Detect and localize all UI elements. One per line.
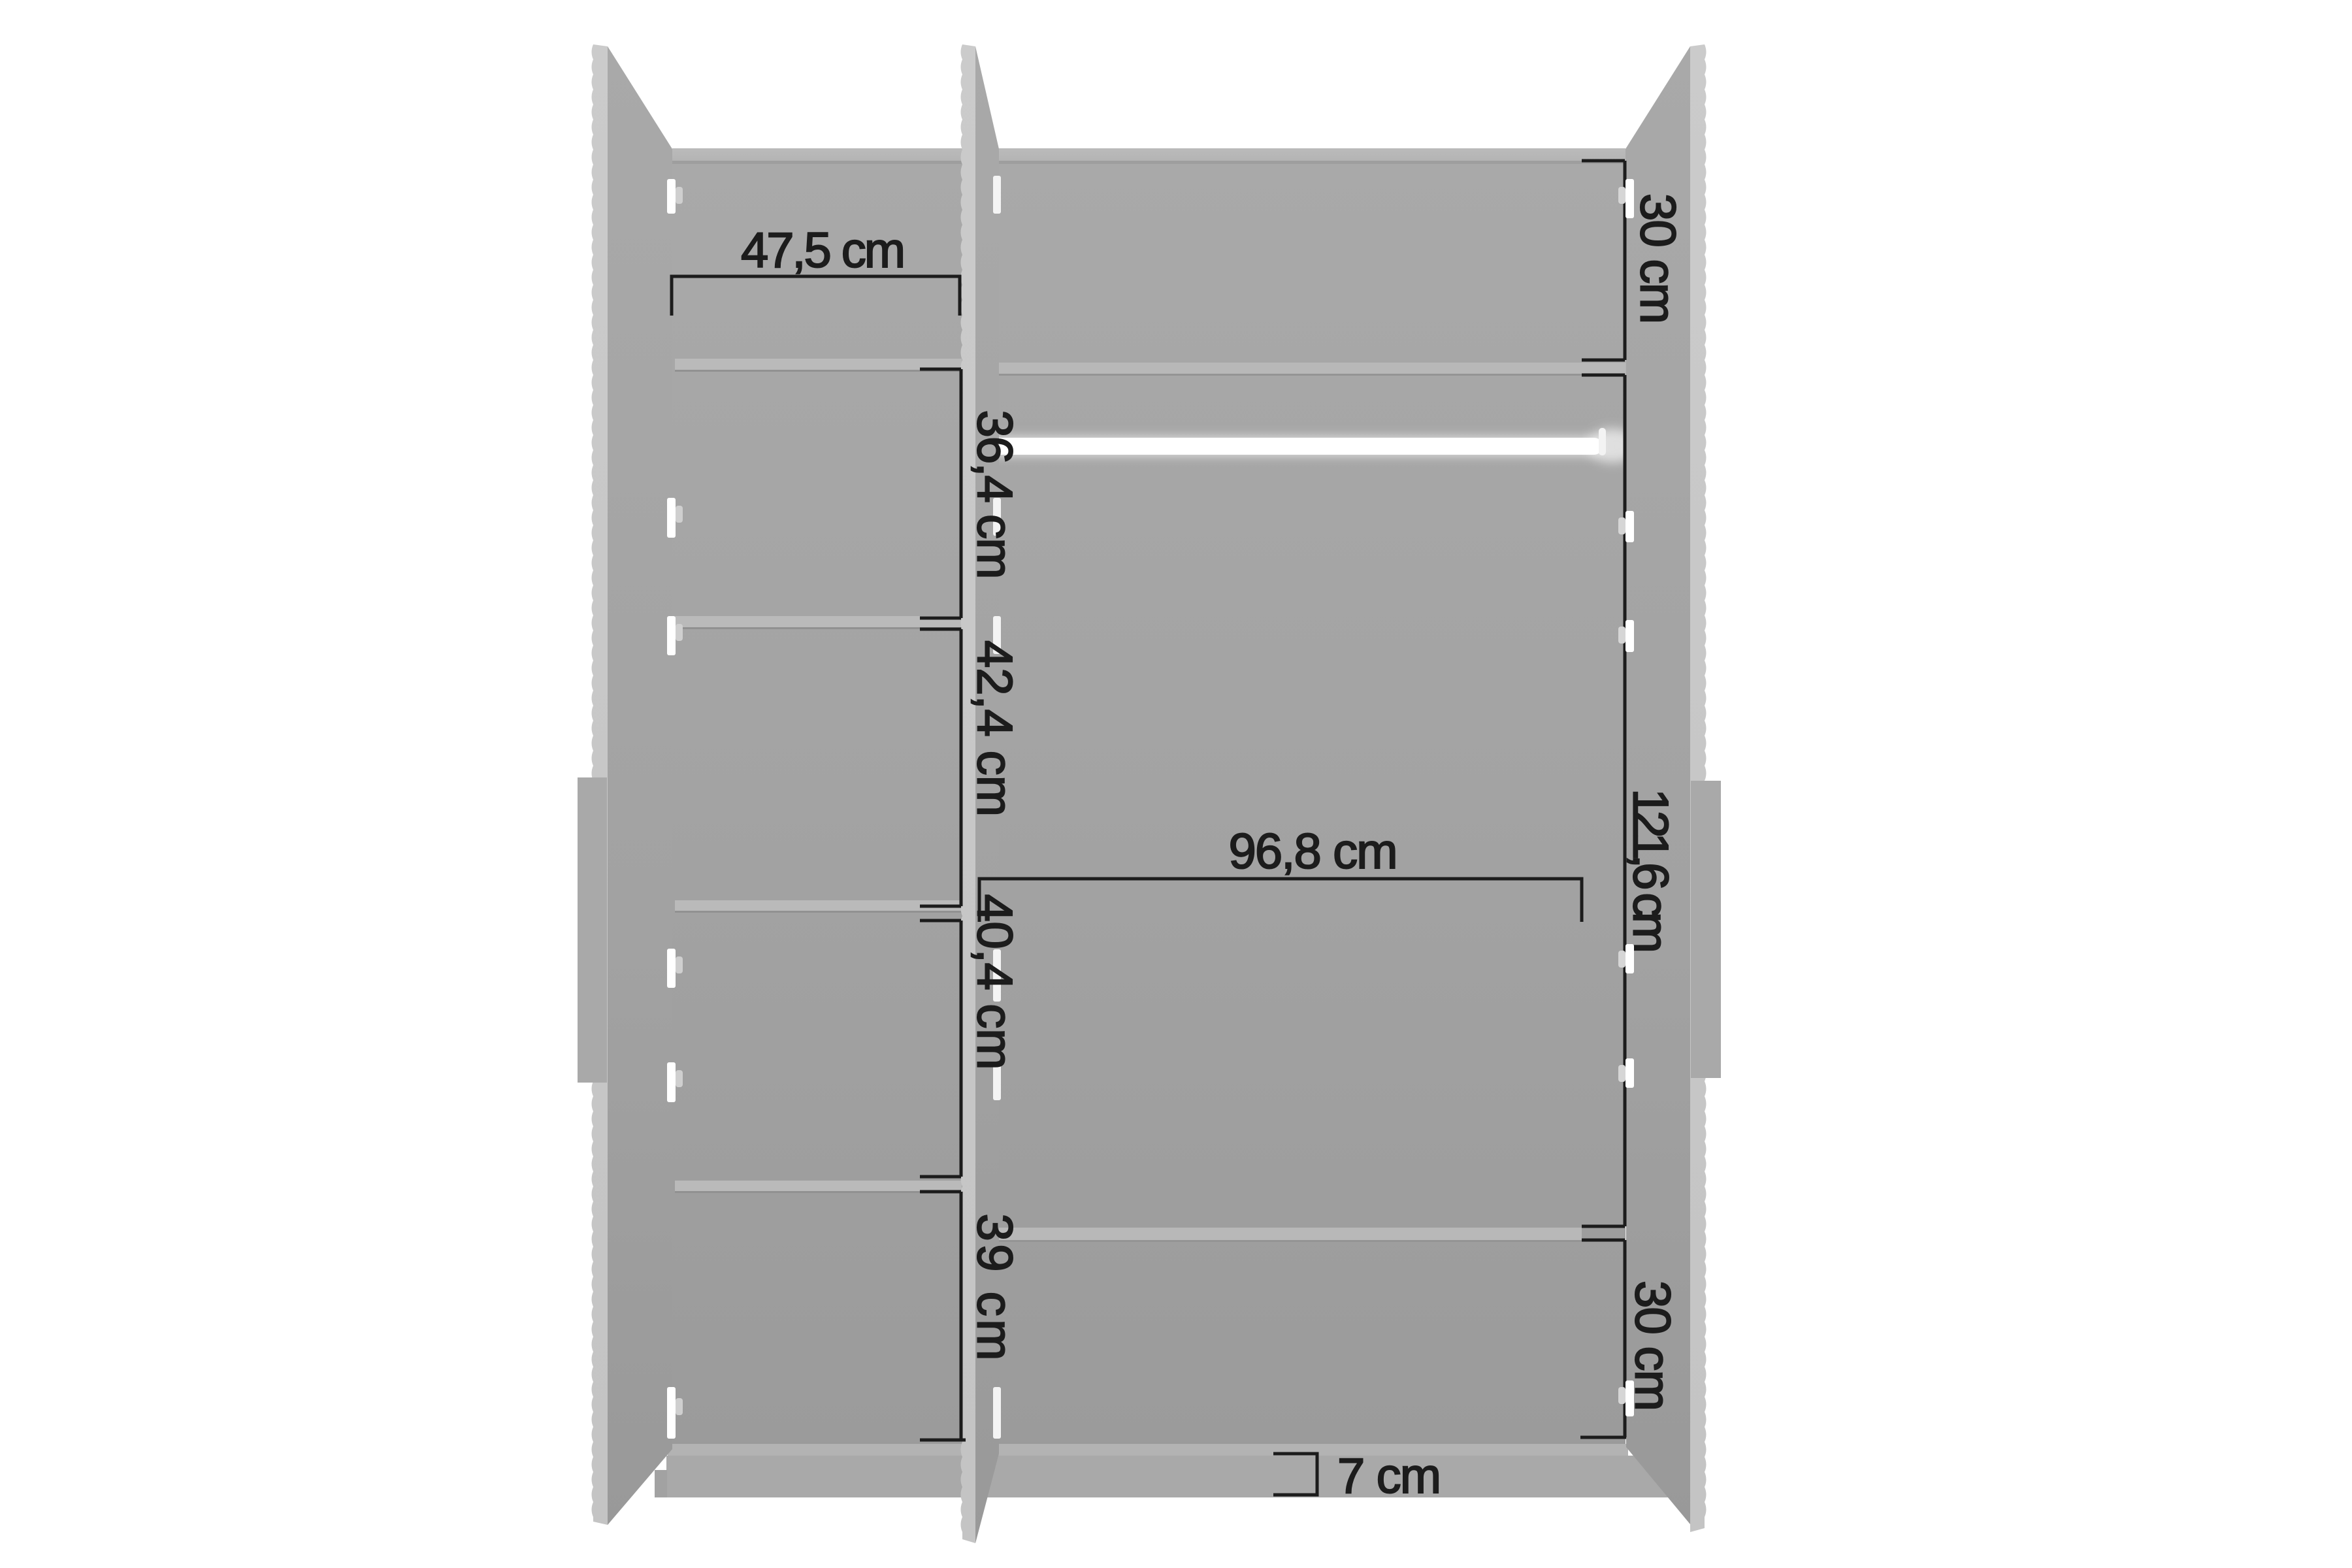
svg-text:7 cm: 7 cm [1337,1448,1441,1504]
svg-text:39 cm: 39 cm [967,1214,1022,1361]
svg-text:47,5 cm: 47,5 cm [741,223,906,278]
svg-text:36,4 cm: 36,4 cm [967,410,1022,580]
svg-text:30 cm: 30 cm [1630,193,1686,324]
svg-text:96,8 cm: 96,8 cm [1229,824,1398,879]
svg-text:42,4 cm: 42,4 cm [967,640,1022,817]
svg-text:121,6 cm: 121,6 cm [1623,789,1678,953]
svg-text:40,4 cm: 40,4 cm [967,894,1022,1070]
